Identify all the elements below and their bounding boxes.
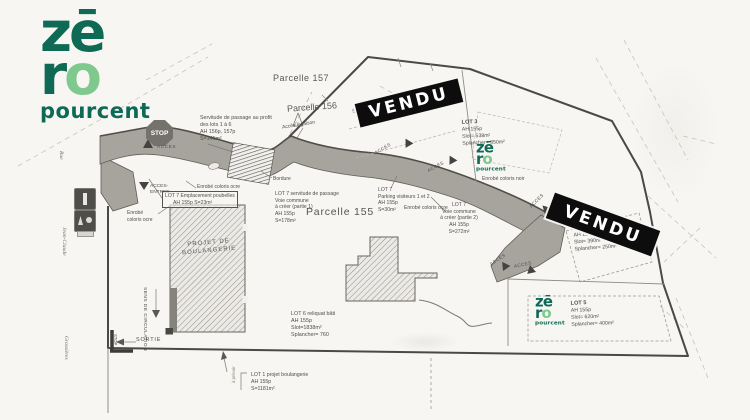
bakery-wall-shade (170, 288, 177, 332)
sortie-label: SORTIE (136, 337, 161, 344)
site-plan-document: zē ro pourcent zē ro pourcent zē ro pour… (0, 0, 750, 420)
lot1-data: LOT 1 projet boulangerie AH 155p S=1181m… (251, 372, 308, 393)
street-rue-label: Rue (57, 151, 64, 160)
existing-building (346, 237, 437, 301)
parcelle-157-label: Parcelle 157 (273, 73, 329, 85)
corner-post (166, 328, 174, 335)
lot6-data: LOT 6 reliquat bâti AH 155p Slot=1838m² … (291, 311, 335, 340)
bordure-label: Bordure (273, 176, 291, 183)
acces-label: ACCES (157, 145, 176, 151)
brand-logo: zē ro pourcent (40, 12, 150, 122)
lot-divider (508, 279, 664, 284)
poubelles-box: LOT 7 Emplacement poubelles AH 155p S=23… (162, 191, 238, 208)
enrobe-ocre-label2: Enrobécoloris ocre (127, 210, 153, 223)
door-notch (243, 296, 248, 303)
door-notch (243, 224, 248, 231)
servitude-note: Servitude de passage au profit des lots … (200, 115, 272, 143)
enrobe-ocre-label: Enrobé coloris ocre (197, 184, 240, 191)
lot5-data: LOT 5 AH 155p Slot= 620m² Splancher= 400… (571, 299, 614, 328)
stop-exit-label: STOP (112, 334, 118, 345)
acces-triangle (402, 136, 414, 147)
lot7-partie2-note: LOT 7Voie commune à créer (partie 2)AH 1… (428, 202, 490, 236)
lot5-brand-logo: zē ro pourcent (535, 296, 565, 326)
bakery-building (170, 205, 245, 332)
acces-triangle (446, 153, 458, 164)
oneway-sign-icon (74, 188, 96, 210)
entree-triangle (139, 182, 149, 190)
lot1-bracket (241, 373, 247, 390)
garden-wall-curve (419, 300, 492, 326)
lot3-brand-logo: zē ro pourcent (476, 142, 506, 172)
road-entrance-apron (101, 156, 138, 211)
crosswalk-hatch (227, 143, 274, 185)
shared-zone-sign-icon (74, 210, 96, 232)
street-grassieres-label: Grassières (62, 336, 69, 360)
lot7-partie1-note: LOT 7 servitude de passageVoie commune à… (275, 191, 339, 225)
enrobe-noir-label: Enrobé coloris noir (482, 176, 524, 183)
street-jean-claude-label: Jean-Claude (60, 227, 67, 256)
logo-word: pourcent (40, 101, 150, 122)
a-prevoir-label: à prévoir (231, 366, 237, 383)
sign-plate (77, 231, 94, 237)
a-prevoir-arrow (224, 358, 227, 372)
logo-line2: ro (40, 53, 150, 98)
